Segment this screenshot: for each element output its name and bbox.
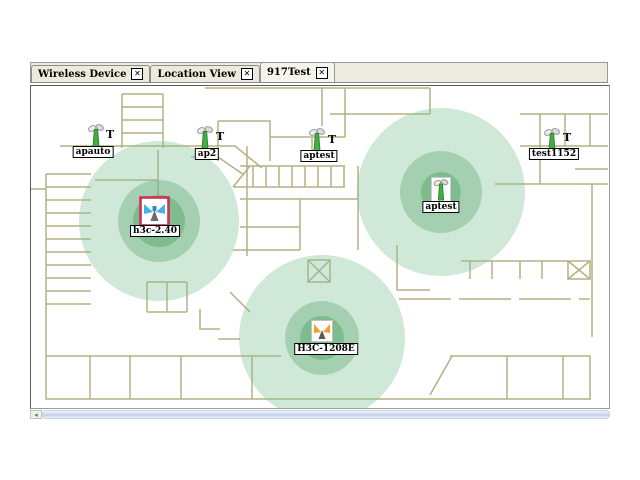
transmit-mark: T <box>328 135 336 145</box>
ap-ap2-antenna-green-icon[interactable] <box>197 124 213 150</box>
tab-bar: Wireless Device ✕ Location View ✕ 917Tes… <box>30 62 608 83</box>
ap-aptest-antenna-green-boxed-icon[interactable] <box>431 177 451 203</box>
close-icon[interactable]: ✕ <box>131 68 143 80</box>
transmit-mark: T <box>563 133 571 143</box>
ap-label: apauto <box>73 146 114 158</box>
scroll-left-icon[interactable]: ◂ <box>30 410 42 419</box>
transmit-mark: T <box>106 130 114 140</box>
close-icon[interactable]: ✕ <box>241 68 253 80</box>
app-window: Wireless Device ✕ Location View ✕ 917Tes… <box>0 0 640 480</box>
tab-label: 917Test <box>267 67 311 78</box>
ap-label: aptest <box>300 150 337 162</box>
ap-layer: TapautoTap2TaptestTtest1152h3c-2.40aptes… <box>31 86 609 408</box>
ap-label: H3C-1208E <box>294 343 358 355</box>
ap-label: test1152 <box>529 148 579 160</box>
ap-apauto-antenna-green-icon[interactable] <box>88 122 104 148</box>
close-icon[interactable]: ✕ <box>316 67 328 79</box>
ap-h3c-2-40-antenna-selected-icon[interactable] <box>139 196 170 227</box>
ap-label: aptest <box>422 201 459 213</box>
tab-label: Location View <box>157 69 235 80</box>
tab-label: Wireless Device <box>38 69 126 80</box>
tab-917test[interactable]: 917Test ✕ <box>260 62 335 82</box>
tab-location-view[interactable]: Location View ✕ <box>150 65 259 82</box>
ap-label: h3c-2.40 <box>130 225 180 237</box>
ap-h3c-1208e-antenna-orange-boxed-icon[interactable] <box>311 320 333 342</box>
transmit-mark: T <box>216 132 224 142</box>
horizontal-scrollbar[interactable]: ◂ <box>30 409 610 419</box>
scroll-thumb[interactable] <box>42 410 610 419</box>
tab-wireless-device[interactable]: Wireless Device ✕ <box>31 65 150 82</box>
location-map-viewport[interactable]: TapautoTap2TaptestTtest1152h3c-2.40aptes… <box>30 85 610 409</box>
ap-aptest-antenna-green-icon[interactable] <box>309 126 325 152</box>
ap-label: ap2 <box>195 148 219 160</box>
